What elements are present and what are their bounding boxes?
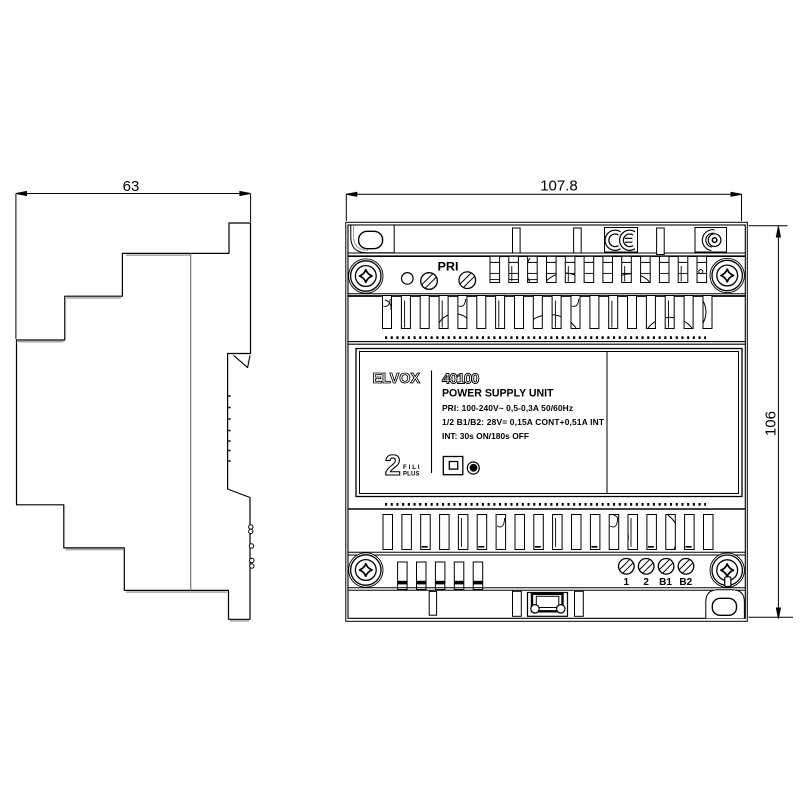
svg-text:B1: B1 [659,577,672,588]
svg-text:PRI: 100-240V~ 0,5-0,3A 50/6: PRI: 100-240V~ 0,5-0,3A 50/60Hz [442,403,573,413]
svg-text:INT: 30s ON/180s OFF: INT: 30s ON/180s OFF [442,431,529,441]
svg-text:B2: B2 [679,577,692,588]
svg-text:1: 1 [624,577,630,588]
svg-text:ELVOX: ELVOX [373,371,421,387]
svg-text:PLUS: PLUS [403,472,420,478]
svg-text:107.8: 107.8 [540,178,578,195]
svg-text:40100: 40100 [442,371,480,388]
svg-text:POWER SUPPLY UNIT: POWER SUPPLY UNIT [442,387,554,399]
svg-text:2: 2 [385,450,401,482]
svg-text:2: 2 [643,577,649,588]
svg-text:FILI: FILI [403,465,420,471]
svg-text:106: 106 [762,411,779,436]
svg-text:PRI: PRI [438,261,459,273]
svg-text:1/2 B1/B2: 28V= 0,15A CONT+0: 1/2 B1/B2: 28V= 0,15A CONT+0,51A INT [442,417,605,427]
svg-text:63: 63 [123,178,140,195]
